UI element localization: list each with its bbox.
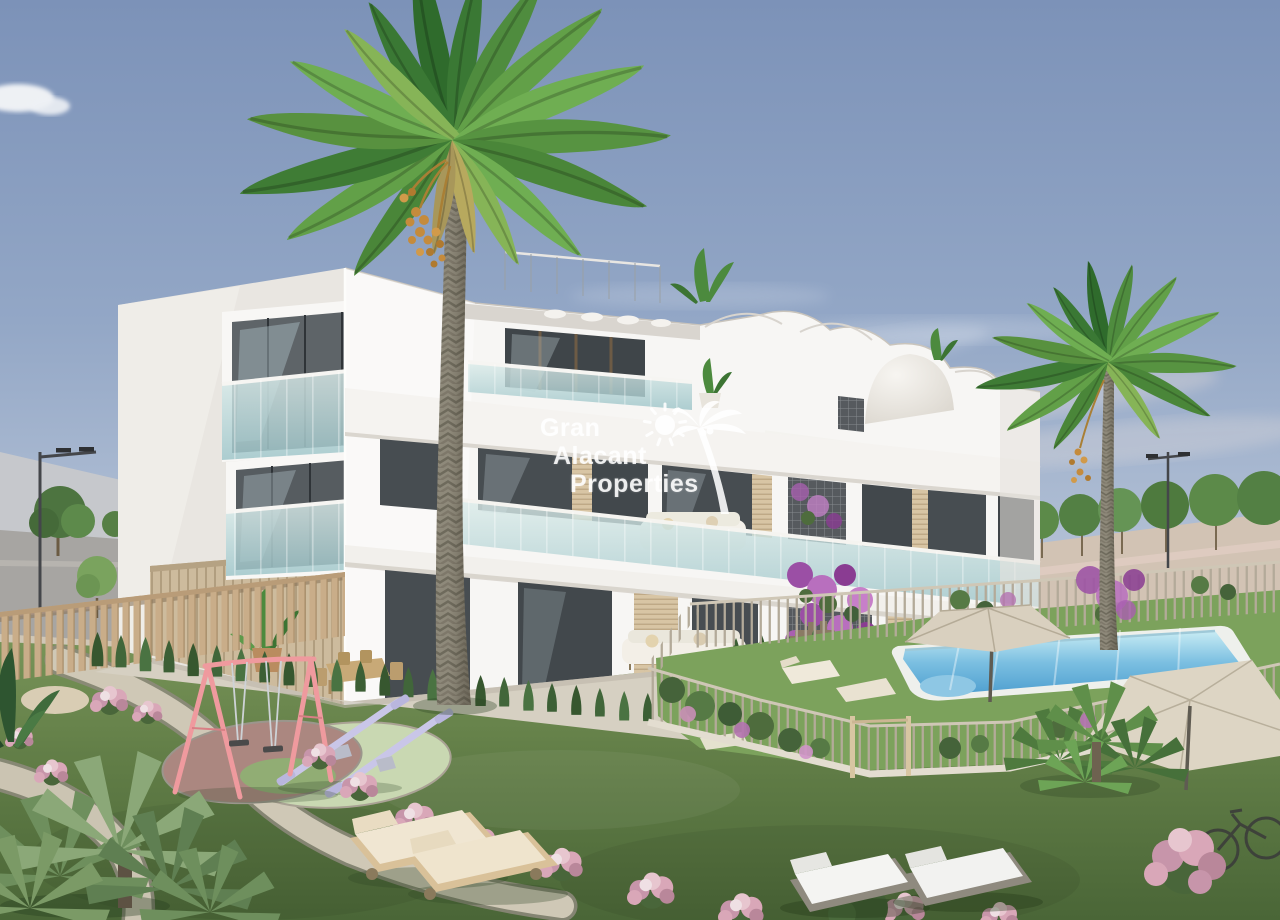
render-photo: Gran Alacant Properties — [0, 0, 1280, 920]
sun-lounger-pair-right — [780, 846, 1043, 918]
scene-canvas — [0, 0, 1280, 920]
